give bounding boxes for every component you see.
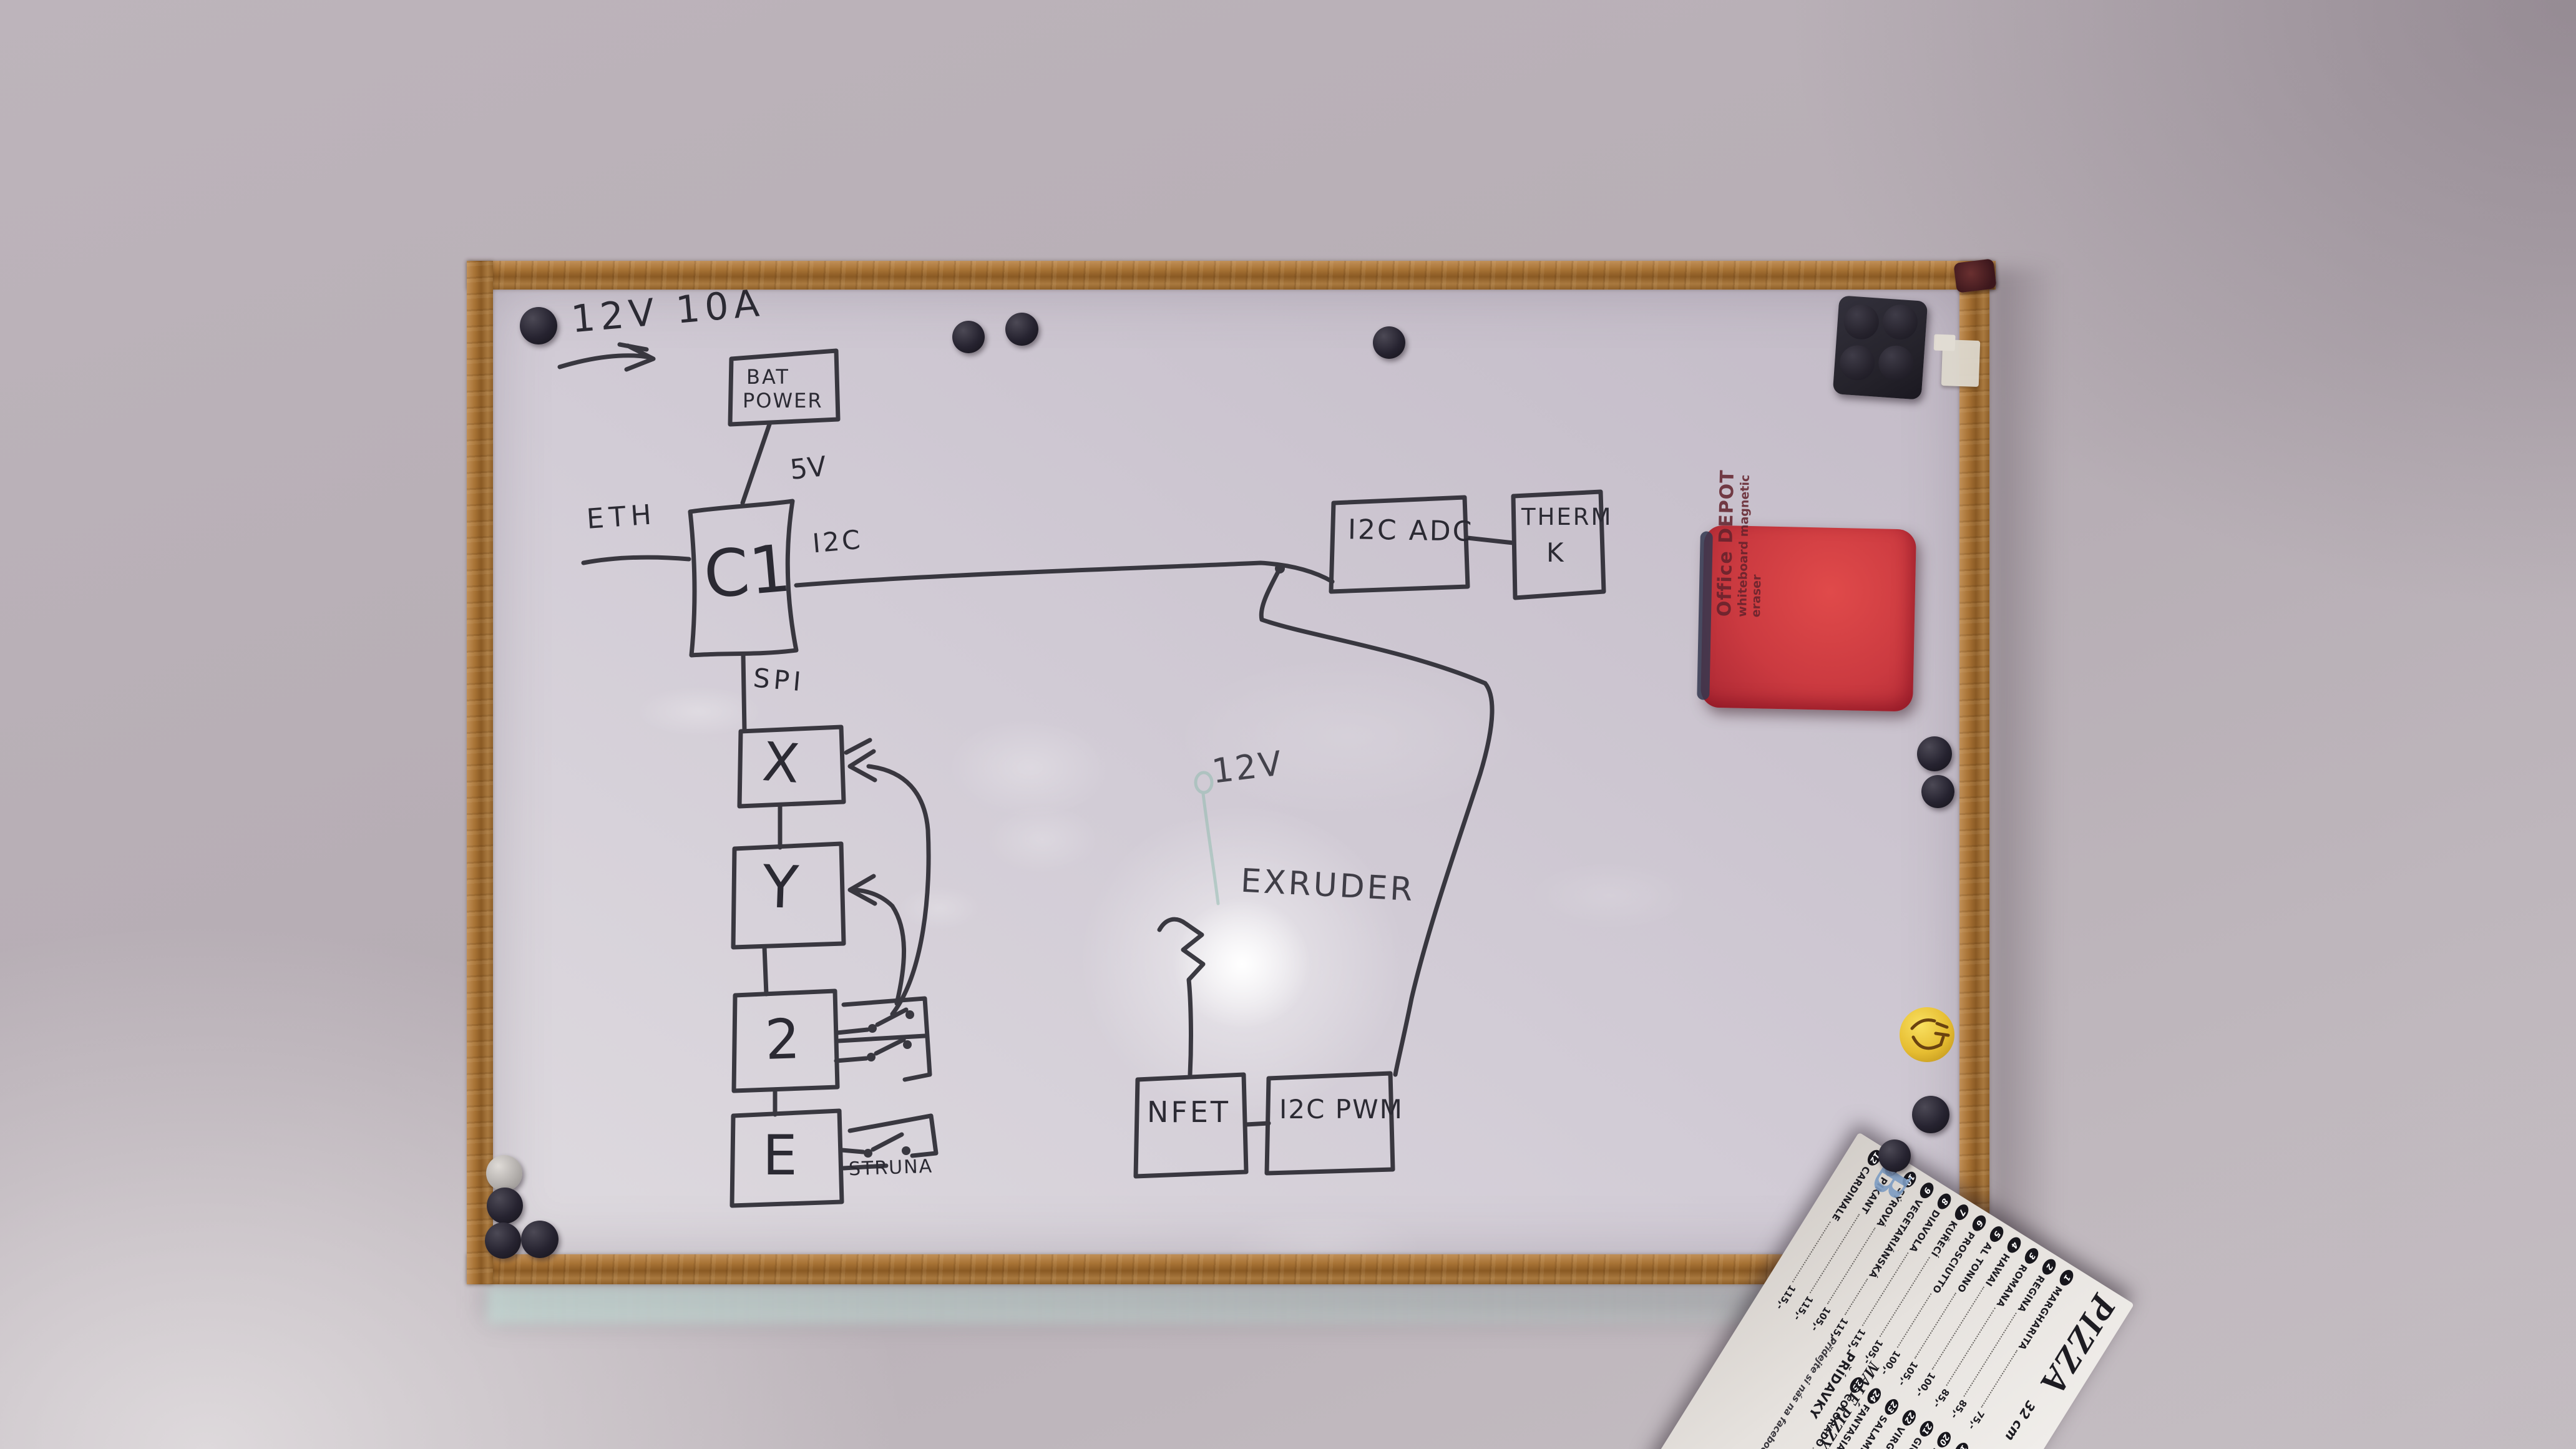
label-extruder: EXRUDER: [1240, 864, 1416, 907]
label-e: E: [763, 1127, 798, 1184]
magnet-right-2: [1921, 775, 1954, 808]
label-eth: ETH: [586, 500, 658, 534]
tray-magnet-3: [1838, 344, 1876, 382]
magnet-tray: [1833, 295, 1928, 400]
wire-nfet-extruder: [1159, 919, 1203, 1075]
eraser-brand-text: Office DEPOT: [1714, 454, 1739, 617]
arrow-arc-y: [850, 876, 904, 1003]
wire-branch-to-pwm: [1261, 568, 1492, 1075]
tray-magnet-4: [1877, 344, 1915, 382]
magnet-bottom-left-3: [521, 1221, 559, 1258]
tray-magnet-2: [1881, 303, 1919, 341]
tape-strip: [1941, 339, 1981, 387]
label-spi: SPI: [752, 664, 806, 696]
wire-bat-c1: [743, 424, 769, 503]
label-x: X: [761, 734, 801, 793]
wire-nfet-pwm: [1246, 1123, 1269, 1125]
magnet-top-1: [952, 321, 985, 353]
label-i2c-adc: I2C ADC: [1348, 515, 1474, 547]
magnet-bottom-left-gray: [486, 1155, 522, 1191]
wire-y-z: [764, 947, 766, 994]
label-y: Y: [761, 857, 799, 920]
label-12v-mid: 12V: [1210, 746, 1286, 789]
smiley-magnet: [1898, 1006, 1956, 1063]
switch-z-bracket: [839, 998, 930, 1080]
eraser-product-text: whiteboard magnetic eraser: [1735, 455, 1766, 618]
label-bat: BAT: [746, 367, 790, 388]
magnet-right-1: [1917, 736, 1952, 771]
arrow-12v: [560, 344, 653, 369]
label-c1: C1: [701, 534, 794, 610]
arrow-arc-x: [846, 740, 929, 1014]
frame-rail-right: [1959, 261, 1989, 1284]
photo-scene: 12V 10A BAT POWER 5V ETH C1 I2C SPI I2C …: [0, 0, 2576, 1449]
magnet-top-3: [1373, 326, 1405, 359]
diagram-strokes: [0, 0, 2576, 1449]
label-z: 2: [764, 1010, 801, 1069]
label-power: POWER: [743, 391, 823, 412]
label-therm-k: K: [1546, 539, 1564, 567]
magnet-top-2: [1005, 313, 1038, 346]
label-i2c: I2C: [811, 526, 864, 558]
label-i2c-pwm: I2C PWM: [1279, 1096, 1403, 1123]
magnet-top-left: [520, 307, 557, 344]
tray-magnet-1: [1843, 303, 1880, 341]
label-nfet: NFET: [1147, 1097, 1231, 1127]
switch-e: [842, 1134, 902, 1152]
magnet-on-menu-1: [1912, 1096, 1949, 1133]
magnet-bottom-left-2: [485, 1222, 521, 1259]
label-5v: 5V: [789, 452, 828, 485]
magnet-bottom-left-1: [487, 1188, 523, 1224]
erased-line: [1203, 794, 1218, 904]
label-therm: THERM: [1521, 505, 1612, 530]
label-struna: STRUNA: [848, 1157, 933, 1179]
magnet-on-menu-2: [1878, 1139, 1911, 1172]
wire-adc-therm: [1468, 538, 1513, 543]
frame-rail-left: [467, 261, 493, 1284]
corner-bracket: [1953, 258, 1996, 293]
eraser-felt-edge: [1697, 531, 1713, 700]
wire-spi: [743, 655, 744, 730]
wire-eth: [583, 557, 689, 563]
frame-rail-top: [467, 261, 1996, 290]
wire-i2c: [796, 563, 1332, 585]
menu-size: 32 cm: [2002, 1398, 2038, 1444]
whiteboard-eraser: Office DEPOT whiteboard magnetic eraser: [1700, 525, 1916, 711]
erased-circle: [1196, 773, 1212, 793]
